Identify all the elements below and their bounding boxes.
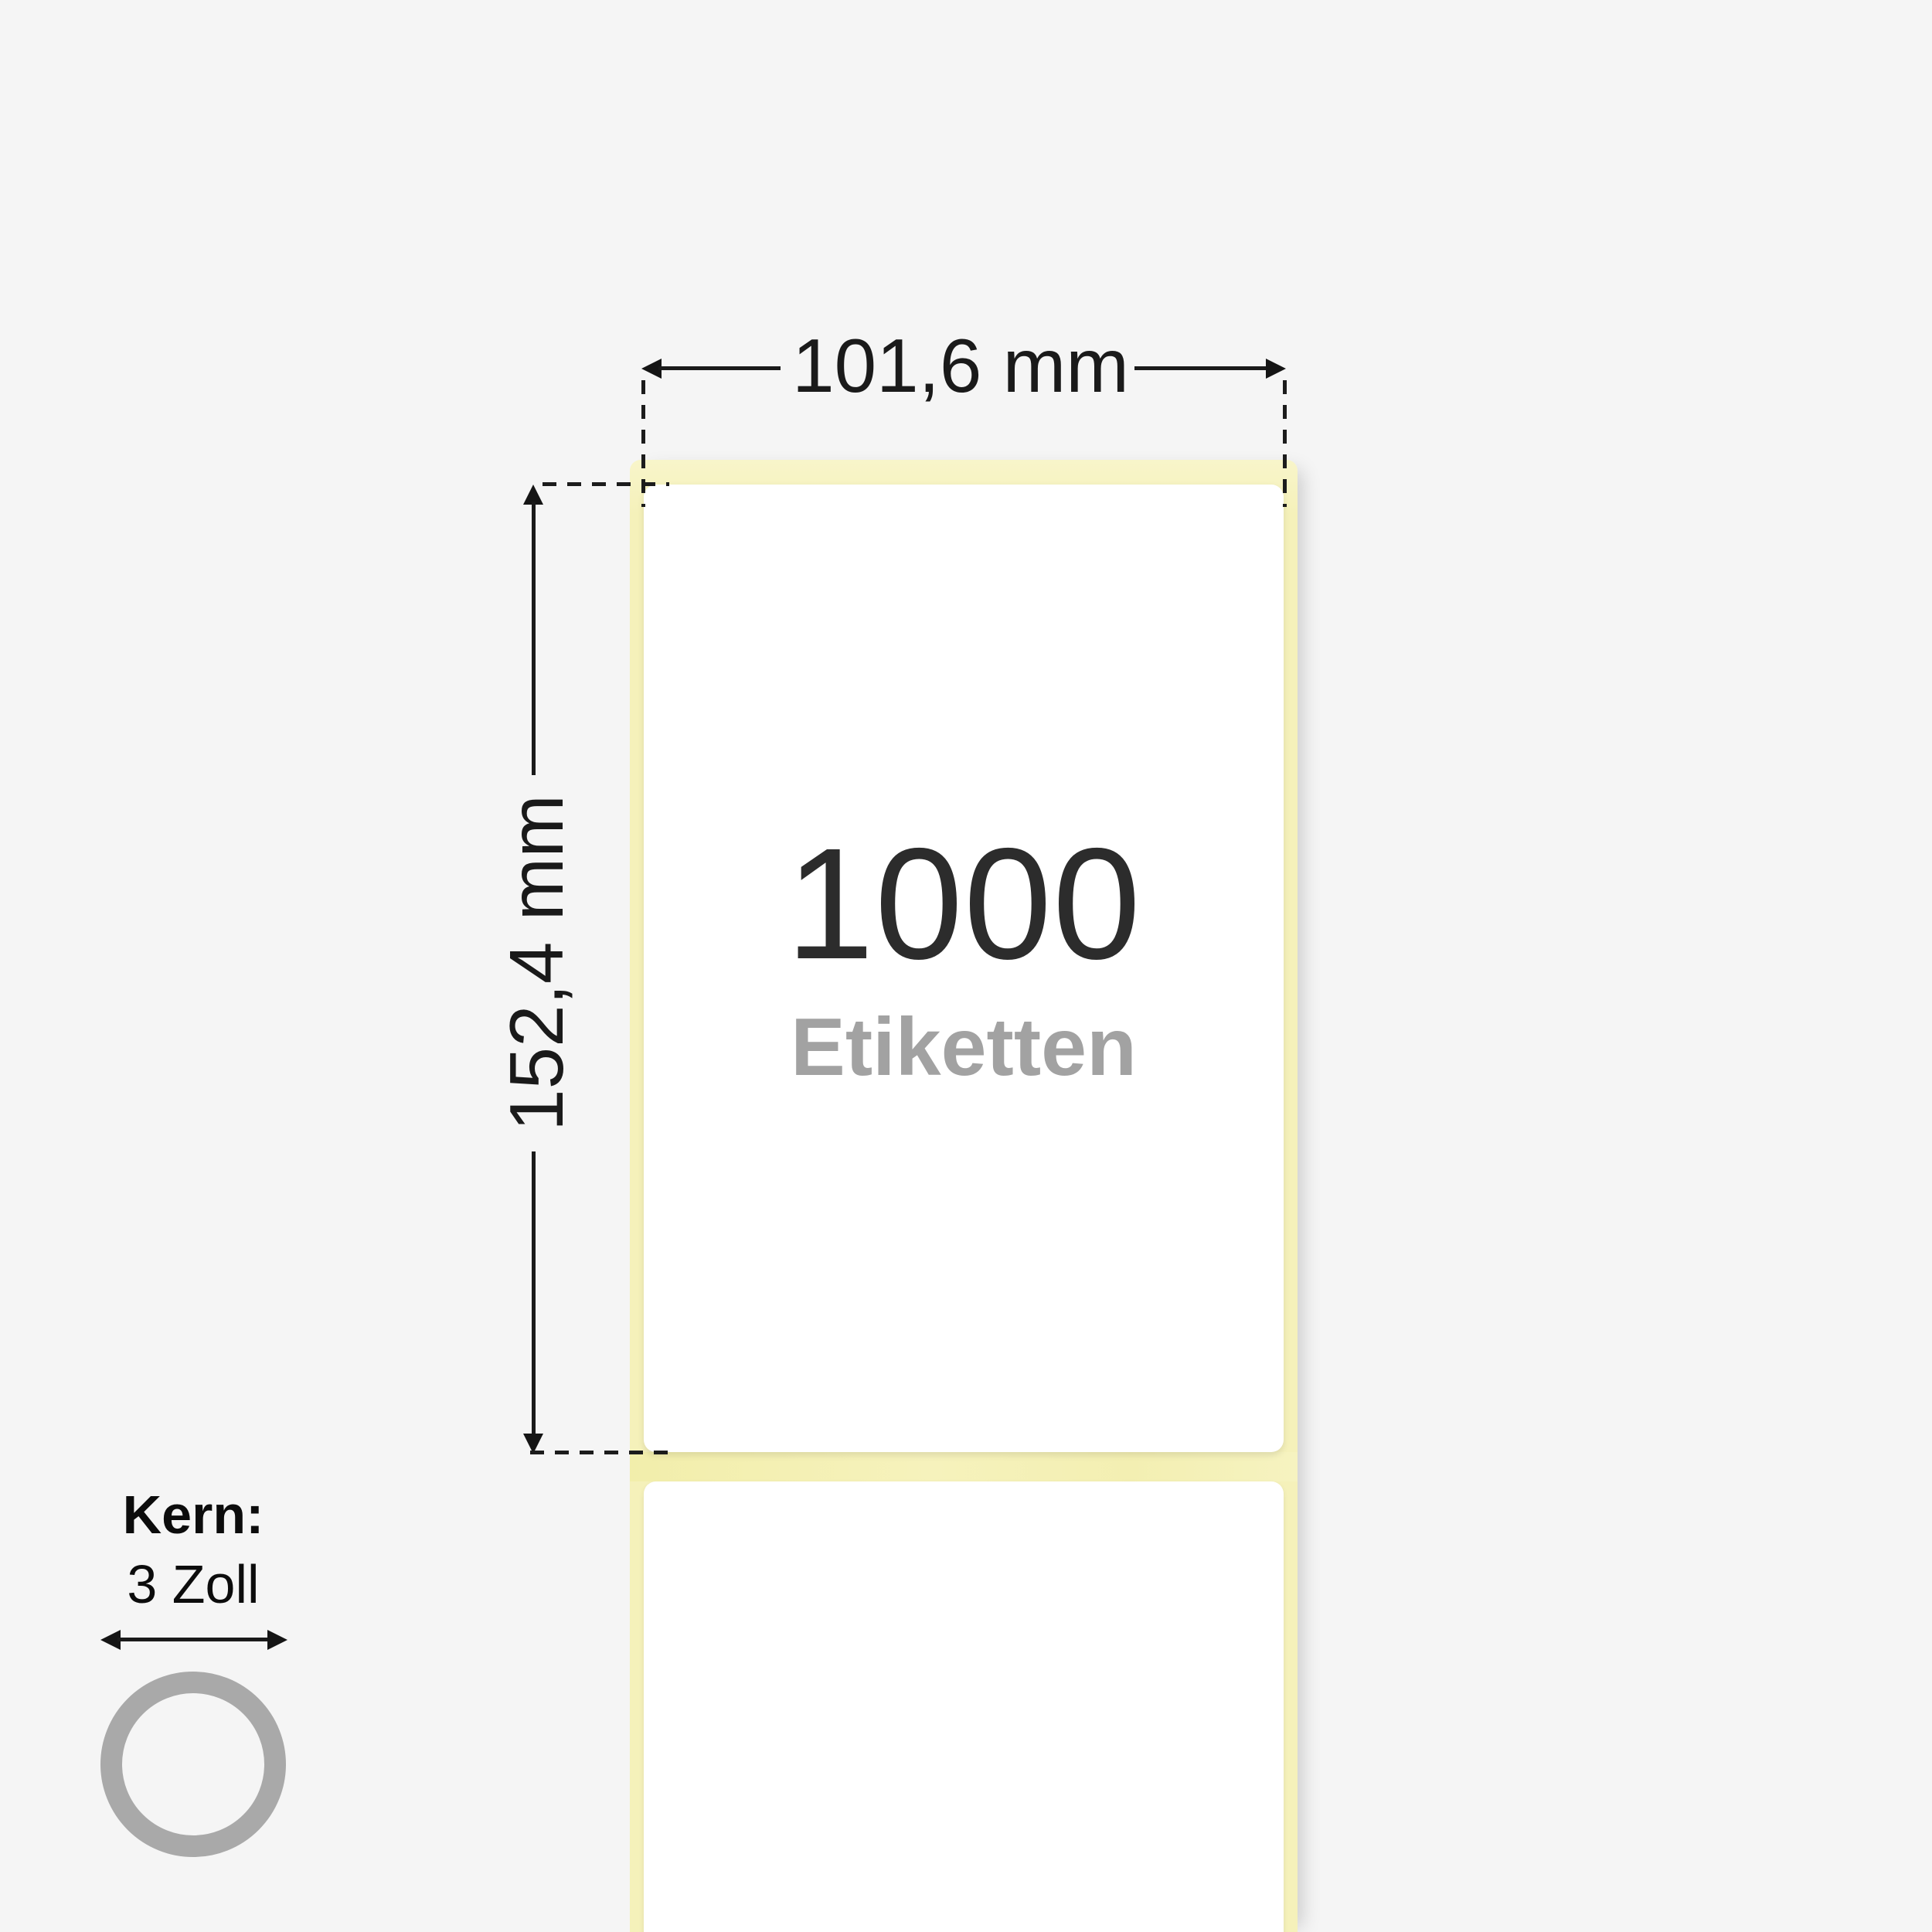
label-roll-liner: 1000 Etiketten	[630, 460, 1298, 1932]
label-blank-2	[644, 1481, 1284, 1932]
width-arrow-right-line	[1134, 366, 1267, 370]
width-guide-dashed-left	[641, 380, 645, 507]
height-guide-dashed-bottom	[530, 1451, 669, 1454]
width-guide-dashed-right	[1283, 380, 1287, 507]
liner-gap	[630, 1452, 1298, 1481]
core-ring-icon	[100, 1672, 286, 1857]
width-arrow-right-head-icon	[1266, 359, 1286, 379]
height-dimension-label: 152,4 mm	[498, 794, 574, 1131]
height-arrow-top-line	[532, 502, 536, 775]
label-text-block: 1000 Etiketten	[644, 825, 1284, 1088]
core-arrow-line	[117, 1638, 270, 1641]
core-text-block: Kern: 3 Zoll	[62, 1482, 325, 1617]
core-arrow-right-head-icon	[267, 1630, 287, 1650]
label-roll-product-illustration: 1000 Etiketten 101,6 mm 152,4 mm Kern: 3…	[0, 0, 1932, 1932]
height-arrow-bottom-line	[532, 1151, 536, 1436]
width-arrow-left-line	[658, 366, 781, 370]
width-dimension-label: 101,6 mm	[792, 328, 1129, 403]
core-value: 3 Zoll	[62, 1552, 325, 1617]
label-count-unit: Etiketten	[791, 1006, 1137, 1088]
core-title: Kern:	[62, 1482, 325, 1547]
label-blank-1: 1000 Etiketten	[644, 485, 1284, 1452]
label-count: 1000	[786, 825, 1141, 983]
height-guide-dashed-top	[543, 482, 669, 486]
